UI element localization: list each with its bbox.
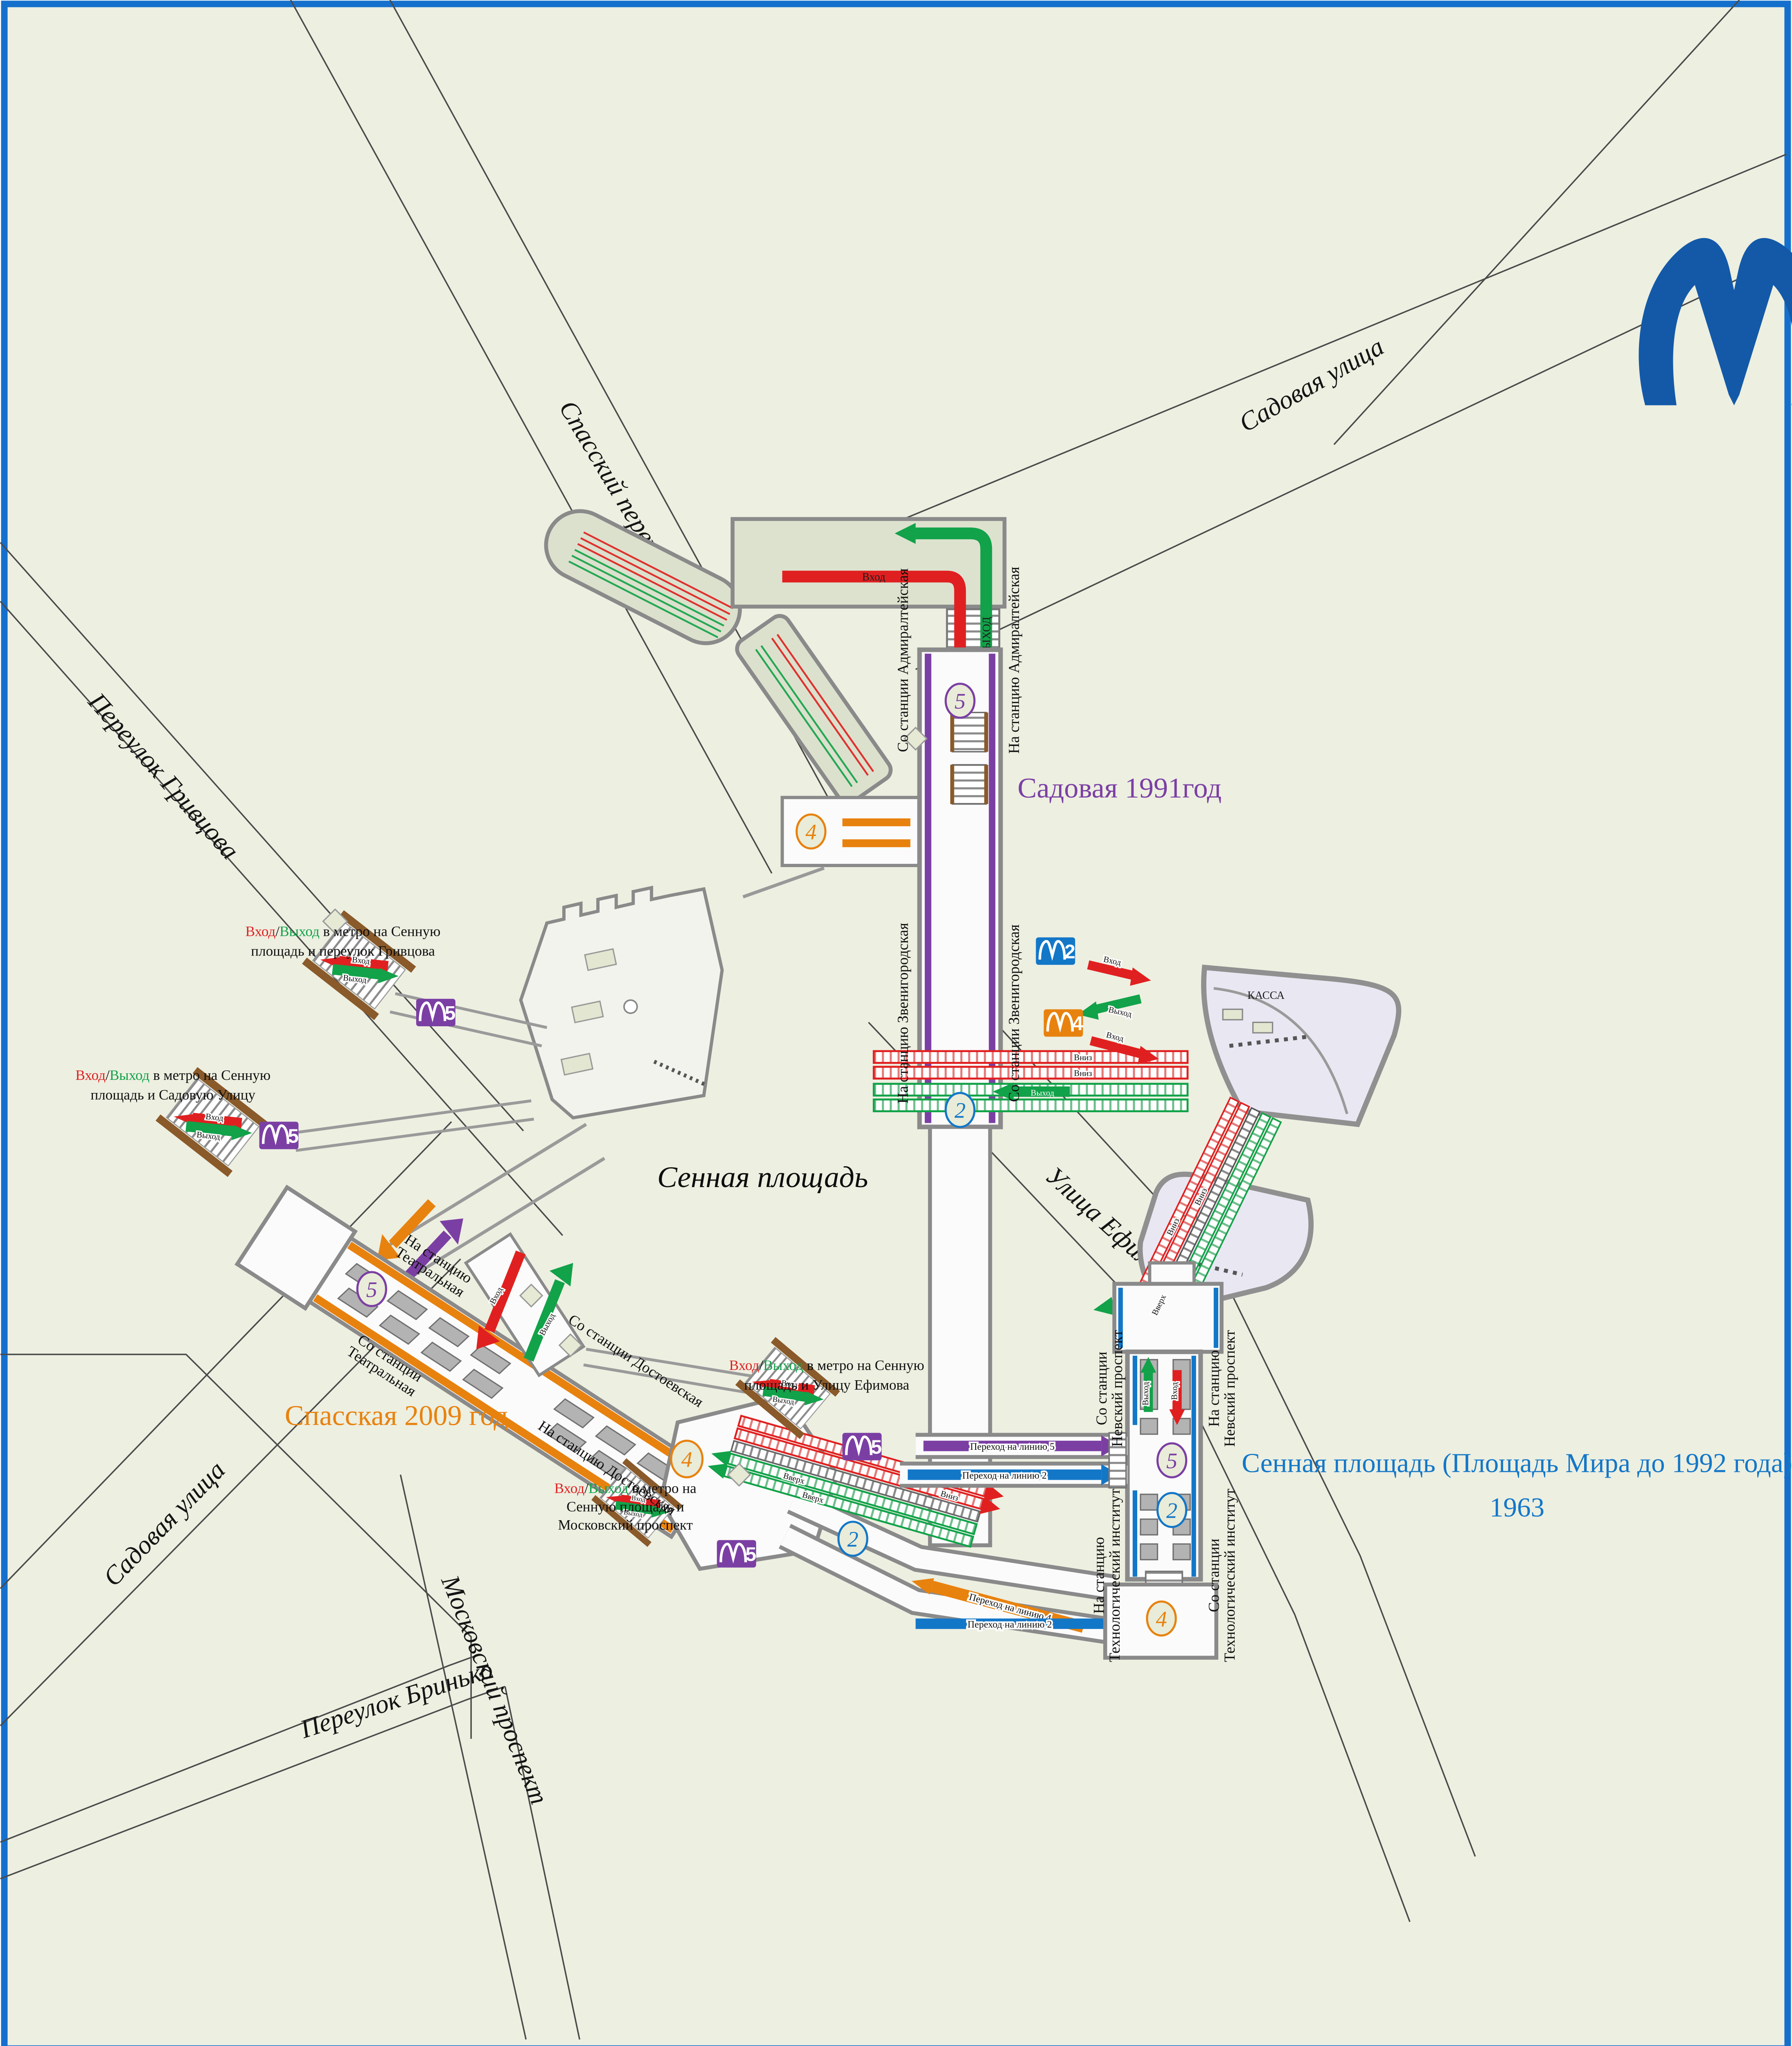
svg-text:5: 5 (1166, 1449, 1177, 1473)
svg-text:4: 4 (1156, 1607, 1167, 1631)
dir-from-zvenigorodskaya: Со станции Звенигородская (1005, 924, 1022, 1102)
entrance-note-efimova: Вход/Выход в метро на Сенную (729, 1357, 924, 1373)
transfer-to-line2-label-south: Переход на линию 2 (967, 1620, 1052, 1630)
svg-text:4: 4 (681, 1447, 692, 1472)
circle-5-sennaya: 5 (1157, 1443, 1186, 1477)
line2-wall-stripe (1133, 1490, 1137, 1577)
transfer-to-line5-label: Переход на линию 5 (970, 1442, 1055, 1452)
metro-station-map: Вход Выход Спасский переулок Садовая ули… (0, 0, 1792, 2046)
entrance-note-sadovaya: Вход/Выход в метро на Сенную (75, 1067, 270, 1083)
entrance-note-moskovsky3: Московский проспект (558, 1517, 692, 1533)
travolator-down-label: Вниз (1074, 1053, 1092, 1062)
badge-number: 5 (871, 1437, 882, 1458)
badge-number: 5 (746, 1544, 757, 1566)
travolator-exit-label: Выход (1030, 1088, 1054, 1097)
sadovaya-title: Садовая 1991год (1017, 772, 1222, 804)
svg-text:4: 4 (805, 820, 816, 844)
svg-text:2: 2 (847, 1527, 858, 1552)
sennaya-title-year: 1963 (1490, 1492, 1544, 1523)
svg-text:5: 5 (954, 689, 965, 714)
badge-m2: 2 (1036, 937, 1075, 965)
sennaya-escalator-hall (1114, 1284, 1222, 1352)
badge-m4: 4 (1044, 1009, 1084, 1037)
line2-wall-stripe (1133, 1356, 1137, 1425)
kassa-label: КАССА (1247, 989, 1285, 1001)
badge-number: 5 (445, 1003, 456, 1024)
entrance-note-moskovsky2: Сенную площадь и (566, 1498, 684, 1514)
dir-to-zvenigorodskaya: На станцию Звенигородская (894, 923, 911, 1104)
badge-m5: 5 (717, 1540, 756, 1568)
sennaya-entry-label: Вход (1170, 1382, 1179, 1400)
kiosk (1223, 1009, 1242, 1020)
dir-from-admiralteyskaya: Со станции Адмиралтейская (894, 568, 911, 752)
circle-4-passage: 4 (797, 814, 825, 848)
concourse-column (624, 1000, 637, 1013)
circle-2-sennaya: 2 (1157, 1493, 1186, 1527)
circle-4-sennaya: 4 (1147, 1602, 1176, 1636)
entrance-note-grivtsova: Вход/Выход в метро на Сенную (246, 924, 441, 940)
orange-travolator (843, 818, 911, 826)
circle-2-corridor: 2 (839, 1522, 867, 1556)
circle-5-sadovaya: 5 (946, 684, 974, 718)
badge-m5: 5 (416, 999, 455, 1026)
entrance-note-efimova2: площадь и Улицу Ефимова (744, 1377, 909, 1393)
svg-text:2: 2 (1166, 1498, 1177, 1523)
circle-4-spasskaya: 4 (671, 1441, 703, 1477)
circle-5-spasskaya: 5 (357, 1272, 386, 1306)
kiosk (1253, 1022, 1273, 1033)
entrance-note-grivtsova2: площадь и переулок Гривцова (251, 943, 435, 959)
travolator-down-label: Вниз (1074, 1069, 1092, 1078)
spasskaya-title: Спасская 2009 год (285, 1399, 508, 1431)
circle-2-sadovaya: 2 (946, 1093, 974, 1127)
transfer-to-line2-label: Переход на линию 2 (962, 1470, 1046, 1481)
entrance-note-sadovaya2: площадь и Садовую Улицу (90, 1087, 255, 1103)
badge-number: 5 (288, 1125, 299, 1147)
corridor-entry-label: Вход (862, 571, 886, 583)
badge-number: 2 (1064, 941, 1075, 963)
badge-m5: 5 (843, 1433, 882, 1460)
line2-wall-stripe (1192, 1356, 1196, 1577)
svg-text:5: 5 (366, 1277, 377, 1302)
dir-to-admiralteyskaya: На станцию Адмиралтейская (1005, 567, 1022, 754)
entrance-note-moskovsky: Вход/Выход в метро на (555, 1480, 697, 1496)
badge-number: 4 (1072, 1013, 1083, 1035)
svg-text:2: 2 (954, 1098, 965, 1123)
sennaya-title: Сенная площадь (Площадь Мира до 1992 год… (1242, 1447, 1792, 1478)
badge-m5: 5 (259, 1122, 299, 1149)
orange-travolator (843, 839, 911, 847)
sennaya-exit-label: Выход (1141, 1381, 1150, 1405)
square-label: Сенная площадь (657, 1160, 868, 1194)
